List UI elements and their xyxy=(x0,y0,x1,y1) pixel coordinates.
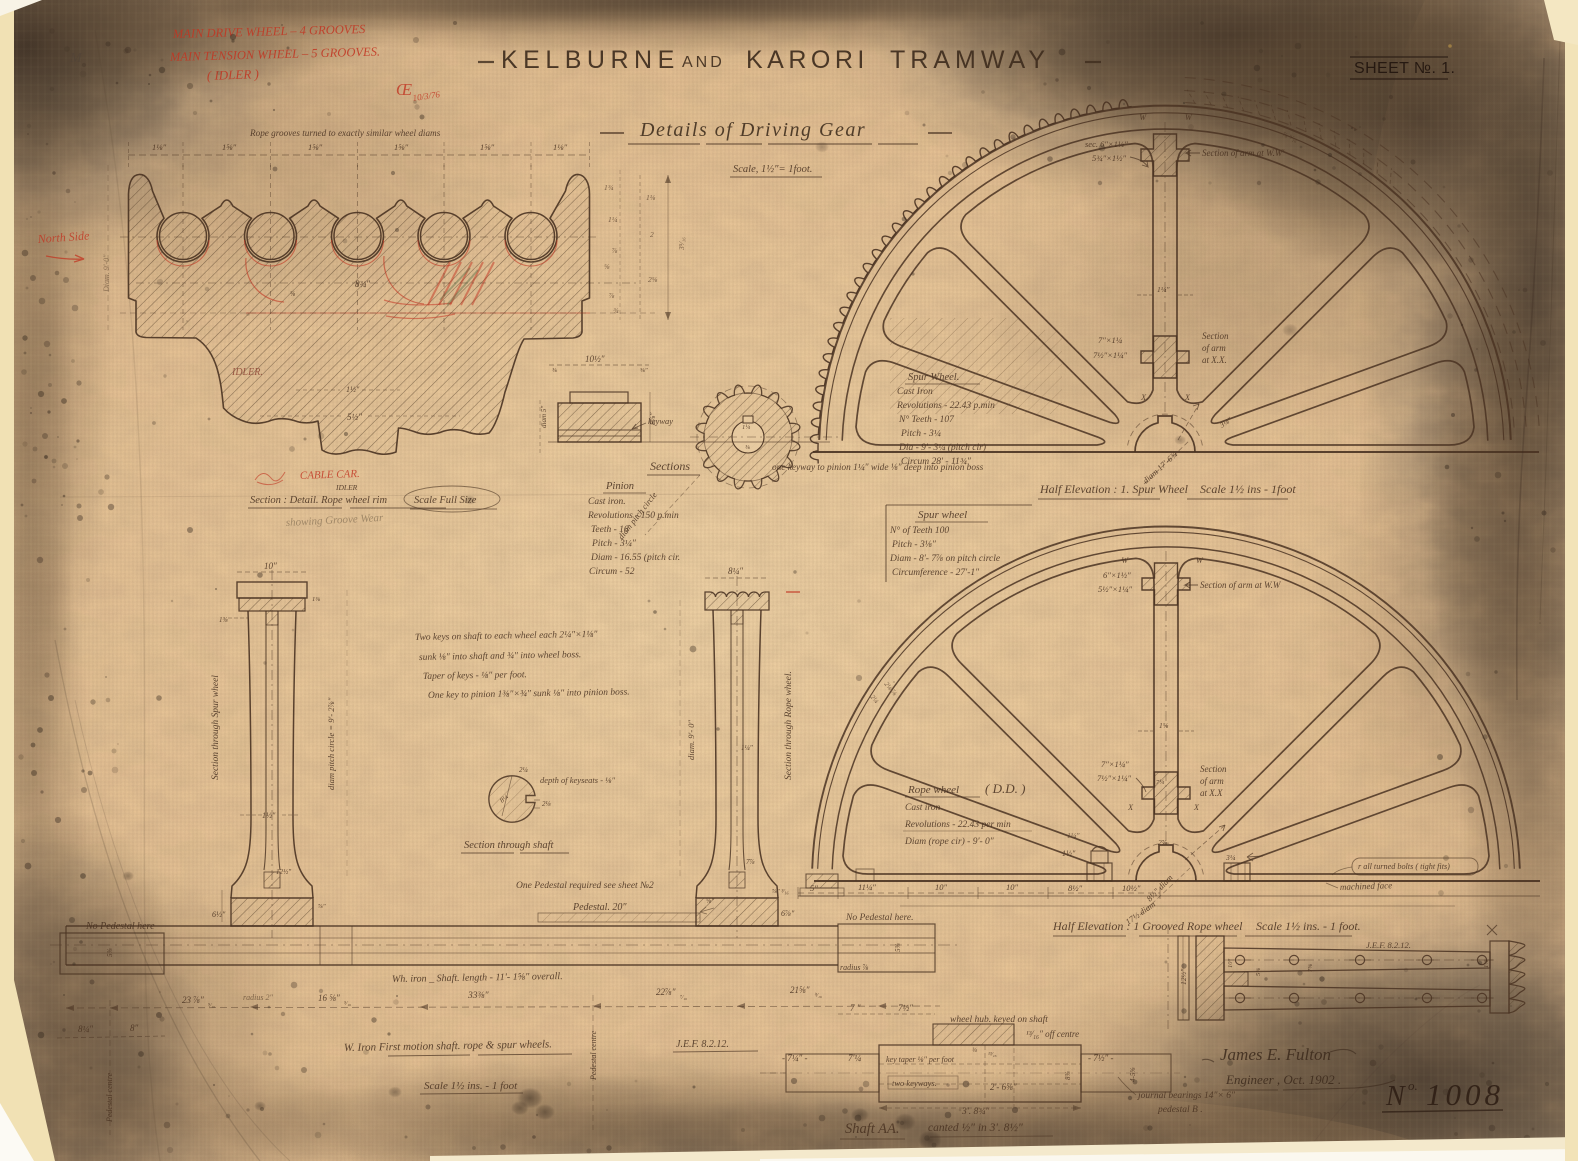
svg-text:Rope grooves turned to exactly: Rope grooves turned to exactly similar w… xyxy=(249,128,441,138)
svg-text:Section of arm at W.W′: Section of arm at W.W′ xyxy=(1202,148,1285,158)
svg-text:1¼: 1¼ xyxy=(742,424,750,431)
svg-text:Details of Driving Ge: Details of Driving Gear xyxy=(639,119,866,141)
svg-text:⅞: ⅞ xyxy=(609,291,615,300)
svg-text:10″: 10″ xyxy=(935,882,948,892)
svg-text:- 7¼″ -: - 7¼″ - xyxy=(782,1053,808,1063)
svg-text:¾: ¾ xyxy=(613,306,619,315)
svg-text:Revolutions - 22.43 per min: Revolutions - 22.43 per min xyxy=(904,820,1011,830)
svg-text:canted ½″ in 3'. 8½″: canted ½″ in 3'. 8½″ xyxy=(928,1122,1023,1134)
svg-text:1¼: 1¼ xyxy=(608,215,618,224)
svg-text:8⅜: 8⅜ xyxy=(1064,1071,1072,1081)
svg-text:Scale 1½ ins. - 1 foot.: Scale 1½ ins. - 1 foot. xyxy=(1256,919,1361,933)
svg-text:2¼: 2¼ xyxy=(519,766,529,774)
svg-text:Teeth - 16: Teeth - 16 xyxy=(591,525,629,535)
svg-text:1¾: 1¾ xyxy=(604,183,614,192)
svg-text:⅝: ⅝ xyxy=(604,262,610,271)
svg-text:7 ″: 7 ″ xyxy=(850,1003,861,1013)
svg-text:1½″: 1½″ xyxy=(262,811,276,820)
svg-text:Rope wheel: Rope wheel xyxy=(907,784,959,796)
svg-text:1⅛: 1⅛ xyxy=(646,193,656,202)
svg-text:⅞: ⅞ xyxy=(612,246,618,255)
svg-text:( IDLER ): ( IDLER ) xyxy=(207,66,259,83)
svg-text:of arm: of arm xyxy=(1202,343,1226,353)
svg-text:SHEET №. 1.: SHEET №. 1. xyxy=(1354,60,1455,77)
svg-text:Pitch - 3⅛″: Pitch - 3⅛″ xyxy=(891,540,937,550)
svg-text:7″×1¼: 7″×1¼ xyxy=(1098,335,1123,345)
svg-text:2: 2 xyxy=(650,230,654,239)
svg-text:Section through Rope wheel.: Section through Rope wheel. xyxy=(784,671,794,780)
svg-text:⅜: ⅜ xyxy=(745,444,750,451)
svg-text:Diam. 9'-0″: Diam. 9'-0″ xyxy=(102,254,111,293)
svg-text:11¼″: 11¼″ xyxy=(858,882,876,892)
svg-text:6″×1½″: 6″×1½″ xyxy=(1103,570,1131,580)
svg-text:machined face: machined face xyxy=(1340,880,1393,892)
svg-text:radius ⅞: radius ⅞ xyxy=(840,963,868,972)
svg-text:Pinion: Pinion xyxy=(605,481,634,492)
svg-text:1¼″: 1¼″ xyxy=(1067,831,1080,840)
svg-text:4-5⅝: 4-5⅝ xyxy=(1129,1067,1137,1082)
svg-text:5⅜: 5⅜ xyxy=(894,943,902,953)
svg-text:key taper ⅛″ per foot: key taper ⅛″ per foot xyxy=(886,1055,955,1064)
svg-text:1½″: 1½″ xyxy=(346,385,360,394)
svg-text:7½″: 7½″ xyxy=(898,1003,913,1013)
svg-text:⅞″: ⅞″ xyxy=(318,903,326,910)
svg-text:1½″: 1½″ xyxy=(1062,849,1076,858)
svg-text:23 ⅞″: 23 ⅞″ xyxy=(182,995,204,1005)
svg-text:8½″: 8½″ xyxy=(1068,883,1083,893)
svg-text:Pedestal centre: Pedestal centre xyxy=(105,1072,114,1123)
svg-text:Pitch - 3¼: Pitch - 3¼ xyxy=(900,428,941,439)
svg-text:J.E.F. 8.2.12.: J.E.F. 8.2.12. xyxy=(676,1039,729,1050)
svg-text:IDLER: IDLER xyxy=(335,483,358,492)
svg-text:1¼″: 1¼″ xyxy=(741,744,753,752)
svg-text:KELBURNE: KELBURNE xyxy=(501,46,680,74)
svg-text:10½″: 10½″ xyxy=(1122,883,1141,893)
svg-text:5⅝: 5⅝ xyxy=(1255,968,1262,976)
svg-text:One Pedestal required see she: One Pedestal required see sheet №2 xyxy=(516,881,654,891)
svg-text:radius 2″: radius 2″ xyxy=(243,993,273,1002)
svg-text:1⅛″: 1⅛″ xyxy=(553,142,568,152)
svg-text:Cast iron: Cast iron xyxy=(905,803,941,813)
svg-text:5½″: 5½″ xyxy=(347,412,362,422)
svg-text:Section : Detail. Rope wheel: Section : Detail. Rope wheel rim xyxy=(250,495,387,506)
svg-text:8¾″: 8¾″ xyxy=(355,279,370,289)
svg-text:⅝″: ⅝″ xyxy=(640,367,648,374)
svg-text:Half Elevation : 1. Spur Whee: Half Elevation : 1. Spur Wheel xyxy=(1039,482,1189,496)
svg-text:8¼″: 8¼″ xyxy=(728,566,743,576)
svg-text:10″: 10″ xyxy=(1227,959,1234,969)
svg-text:Sections: Sections xyxy=(650,459,690,473)
svg-text:2'- 6⅝″: 2'- 6⅝″ xyxy=(990,1082,1017,1092)
svg-text:Revolutions - 150 p.min: Revolutions - 150 p.min xyxy=(587,511,679,521)
svg-text:10″: 10″ xyxy=(1006,882,1019,892)
svg-text:⁵⁄₁₆: ⁵⁄₁₆ xyxy=(344,1001,351,1007)
svg-text:7½″×1¼″: 7½″×1¼″ xyxy=(1097,773,1132,783)
svg-text:1⅝: 1⅝ xyxy=(1483,960,1490,968)
svg-text:1008: 1008 xyxy=(1426,1077,1504,1112)
svg-text:7½″×1¼″: 7½″×1¼″ xyxy=(1093,350,1128,360)
svg-text:CABLE CAR.: CABLE CAR. xyxy=(300,468,360,482)
svg-text:7'¼: 7'¼ xyxy=(848,1053,861,1063)
svg-text:1⅜: 1⅜ xyxy=(219,616,229,624)
svg-text:16 ⅝″: 16 ⅝″ xyxy=(318,993,340,1003)
svg-text:of arm: of arm xyxy=(1200,776,1224,786)
svg-text:J.E.F. 8.2.12.: J.E.F. 8.2.12. xyxy=(1366,940,1411,950)
svg-text:2⅝: 2⅝ xyxy=(648,275,658,284)
svg-text:1⅝″: 1⅝″ xyxy=(308,142,323,152)
svg-text:Diam - 8'- 7⅞ on pitch circle: Diam - 8'- 7⅞ on pitch circle xyxy=(889,554,1000,564)
svg-text:5″: 5″ xyxy=(810,883,818,893)
svg-text:22⅞″: 22⅞″ xyxy=(656,987,676,997)
svg-text:5⅜: 5⅜ xyxy=(106,948,114,958)
svg-text:10″: 10″ xyxy=(264,561,277,571)
svg-text:1⅝″: 1⅝″ xyxy=(480,142,495,152)
svg-text:1⅝″: 1⅝″ xyxy=(394,142,409,152)
svg-text:¹³⁄₁₆: ¹³⁄₁₆ xyxy=(988,1052,997,1058)
svg-text:Pedestal centre: Pedestal centre xyxy=(589,1030,598,1081)
svg-text:7¼: 7¼ xyxy=(1156,779,1164,786)
svg-text:Scale 1½ ins - 1foot: Scale 1½ ins - 1foot xyxy=(1200,482,1296,496)
svg-text:M: M xyxy=(69,51,83,66)
svg-text:one keyway to pinion 1¼″ wide: one keyway to pinion 1¼″ wide ⅛″ deep in… xyxy=(772,462,984,473)
svg-text:10½″: 10½″ xyxy=(585,354,605,364)
svg-text:Scale 1½ ins. - 1 foot: Scale 1½ ins. - 1 foot xyxy=(424,1080,518,1092)
svg-text:⁷⁄₁₆: ⁷⁄₁₆ xyxy=(680,995,687,1001)
svg-text:Dia - 9'- 3¼ (pitch cir): Dia - 9'- 3¼ (pitch cir) xyxy=(898,442,986,453)
svg-text:8″: 8″ xyxy=(130,1023,139,1033)
svg-text:two keyways.: two keyways. xyxy=(892,1078,937,1088)
svg-text:⁹⁄₁₆: ⁹⁄₁₆ xyxy=(208,1003,215,1009)
svg-text:2⅞: 2⅞ xyxy=(1158,838,1168,847)
svg-text:Pitch - 3¼″: Pitch - 3¼″ xyxy=(591,538,637,549)
svg-text:wheel hub. keyed on shaft: wheel hub. keyed on shaft xyxy=(950,1014,1048,1025)
svg-text:1⅛″: 1⅛″ xyxy=(152,142,167,152)
svg-text:Half Elevation : 1 Grooved Rop: Half Elevation : 1 Grooved Rope wheel xyxy=(1052,919,1243,933)
svg-text:journal bearings 14″× 6″: journal bearings 14″× 6″ xyxy=(1136,1091,1236,1101)
svg-text:2⅛: 2⅛ xyxy=(542,800,552,808)
svg-text:Engineer , Oct. 1902 .: Engineer , Oct. 1902 . xyxy=(1225,1072,1341,1087)
svg-text:Pedestal. 20″: Pedestal. 20″ xyxy=(572,902,627,913)
svg-text:21⅝″: 21⅝″ xyxy=(790,985,810,995)
svg-text:3⁵⁄₁₆: 3⁵⁄₁₆ xyxy=(677,237,686,251)
svg-text:KARORI: KARORI xyxy=(746,46,869,74)
svg-text:¾: ¾ xyxy=(972,1047,977,1054)
svg-text:12½″: 12½″ xyxy=(1179,968,1188,985)
svg-text:TRAMWAY: TRAMWAY xyxy=(890,46,1050,74)
svg-text:diam. 9'- 0″: diam. 9'- 0″ xyxy=(686,719,696,760)
svg-text:No Pedestal here.: No Pedestal here. xyxy=(845,913,913,923)
svg-text:Section: Section xyxy=(1202,331,1229,341)
svg-text:7″×1¼″: 7″×1¼″ xyxy=(1101,759,1129,769)
svg-text:6½″: 6½″ xyxy=(212,910,226,919)
svg-text:Section: Section xyxy=(1200,764,1227,774)
svg-text:Circumference - 27'-1″: Circumference - 27'-1″ xyxy=(892,567,980,578)
svg-text:IDLER.: IDLER. xyxy=(231,367,263,378)
svg-text:Cast iron.: Cast iron. xyxy=(588,497,626,507)
svg-text:Scale, 1½″= 1foot.: Scale, 1½″= 1foot. xyxy=(733,164,812,175)
svg-text:3¼: 3¼ xyxy=(1225,853,1236,862)
svg-text:1⅜: 1⅜ xyxy=(312,596,320,603)
svg-text:5¾″×1½″: 5¾″×1½″ xyxy=(1092,153,1127,163)
svg-text:pedestal B .: pedestal B . xyxy=(1157,1105,1203,1115)
svg-text:1⅝″: 1⅝″ xyxy=(222,142,237,152)
svg-text:⅝: ⅝ xyxy=(290,290,296,298)
svg-text:diam 5″: diam 5″ xyxy=(540,406,548,428)
svg-text:Section through Spur wheel: Section through Spur wheel xyxy=(211,675,221,780)
svg-text:depth of keyseats - ⅛″: depth of keyseats - ⅛″ xyxy=(540,775,616,785)
svg-text:1⅝: 1⅝ xyxy=(1159,721,1169,730)
svg-text:ⁱ¹⁄₁₆: ⁱ¹⁄₁₆ xyxy=(814,992,822,999)
svg-text:Revolutions - 22.43 p.min: Revolutions - 22.43 p.min xyxy=(896,401,995,411)
svg-text:1¼″: 1¼″ xyxy=(1157,285,1170,294)
svg-text:N° of Teeth 100: N° of Teeth 100 xyxy=(889,525,949,536)
svg-text:7⅞: 7⅞ xyxy=(746,858,755,866)
svg-text:o.: o. xyxy=(1408,1078,1418,1093)
svg-text:Diam (rope cir) - 9'- 0″: Diam (rope cir) - 9'- 0″ xyxy=(904,836,995,847)
svg-text:Shaft AA.: Shaft AA. xyxy=(845,1121,900,1137)
svg-text:at X.X.: at X.X. xyxy=(1202,355,1227,365)
svg-text:Spur Wheel.: Spur Wheel. xyxy=(908,372,959,383)
svg-text:Spur wheel: Spur wheel xyxy=(918,509,967,521)
svg-text:AND: AND xyxy=(682,54,725,71)
svg-text:r all turned bolts ( tight fit: r all turned bolts ( tight fits) xyxy=(1358,862,1450,871)
svg-text:James E. Fulton: James E. Fulton xyxy=(1220,1045,1331,1064)
svg-text:Diam - 16.55 (pitch cir.: Diam - 16.55 (pitch cir. xyxy=(590,552,680,563)
svg-text:- 7½″ -: - 7½″ - xyxy=(1088,1053,1114,1063)
svg-text:¹³⁄₁₆″ off centre: ¹³⁄₁₆″ off centre xyxy=(1026,1029,1079,1039)
svg-text:6⅞″: 6⅞″ xyxy=(781,909,795,918)
svg-text:⅜: ⅜ xyxy=(552,367,557,374)
svg-text:8¼″: 8¼″ xyxy=(78,1024,93,1034)
svg-text:Œ: Œ xyxy=(396,80,412,99)
svg-text:Section of arm at W.W: Section of arm at W.W xyxy=(1200,580,1282,590)
svg-text:7⅝: 7⅝ xyxy=(1307,964,1314,972)
svg-text:diam pitch circle = 9'- 2⅞″: diam pitch circle = 9'- 2⅞″ xyxy=(326,697,336,790)
svg-text:8⅞″: 8⅞″ xyxy=(648,412,657,425)
svg-text:5½″×1¼″: 5½″×1¼″ xyxy=(1098,584,1133,594)
svg-text:Circum - 52: Circum - 52 xyxy=(589,567,635,577)
svg-text:⅝″: ⅝″ xyxy=(706,897,714,905)
svg-text:N: N xyxy=(1385,1081,1406,1112)
svg-text:N° Teeth - 107: N° Teeth - 107 xyxy=(898,414,955,425)
svg-text:sec. 6″×1½″: sec. 6″×1½″ xyxy=(1085,139,1128,149)
svg-text:⅞″ ³⁄₁₆: ⅞″ ³⁄₁₆ xyxy=(772,888,789,895)
svg-text:12½″: 12½″ xyxy=(276,868,291,876)
svg-text:( D.D. ): ( D.D. ) xyxy=(985,781,1025,796)
svg-text:Taper of keys - ⅛″ per foot.: Taper of keys - ⅛″ per foot. xyxy=(423,669,527,682)
svg-text:Cast Iron: Cast Iron xyxy=(897,387,933,397)
svg-text:Section through shaft: Section through shaft xyxy=(464,840,555,851)
svg-text:at X.X: at X.X xyxy=(1200,788,1223,798)
svg-text:33⅜″: 33⅜″ xyxy=(467,991,490,1001)
